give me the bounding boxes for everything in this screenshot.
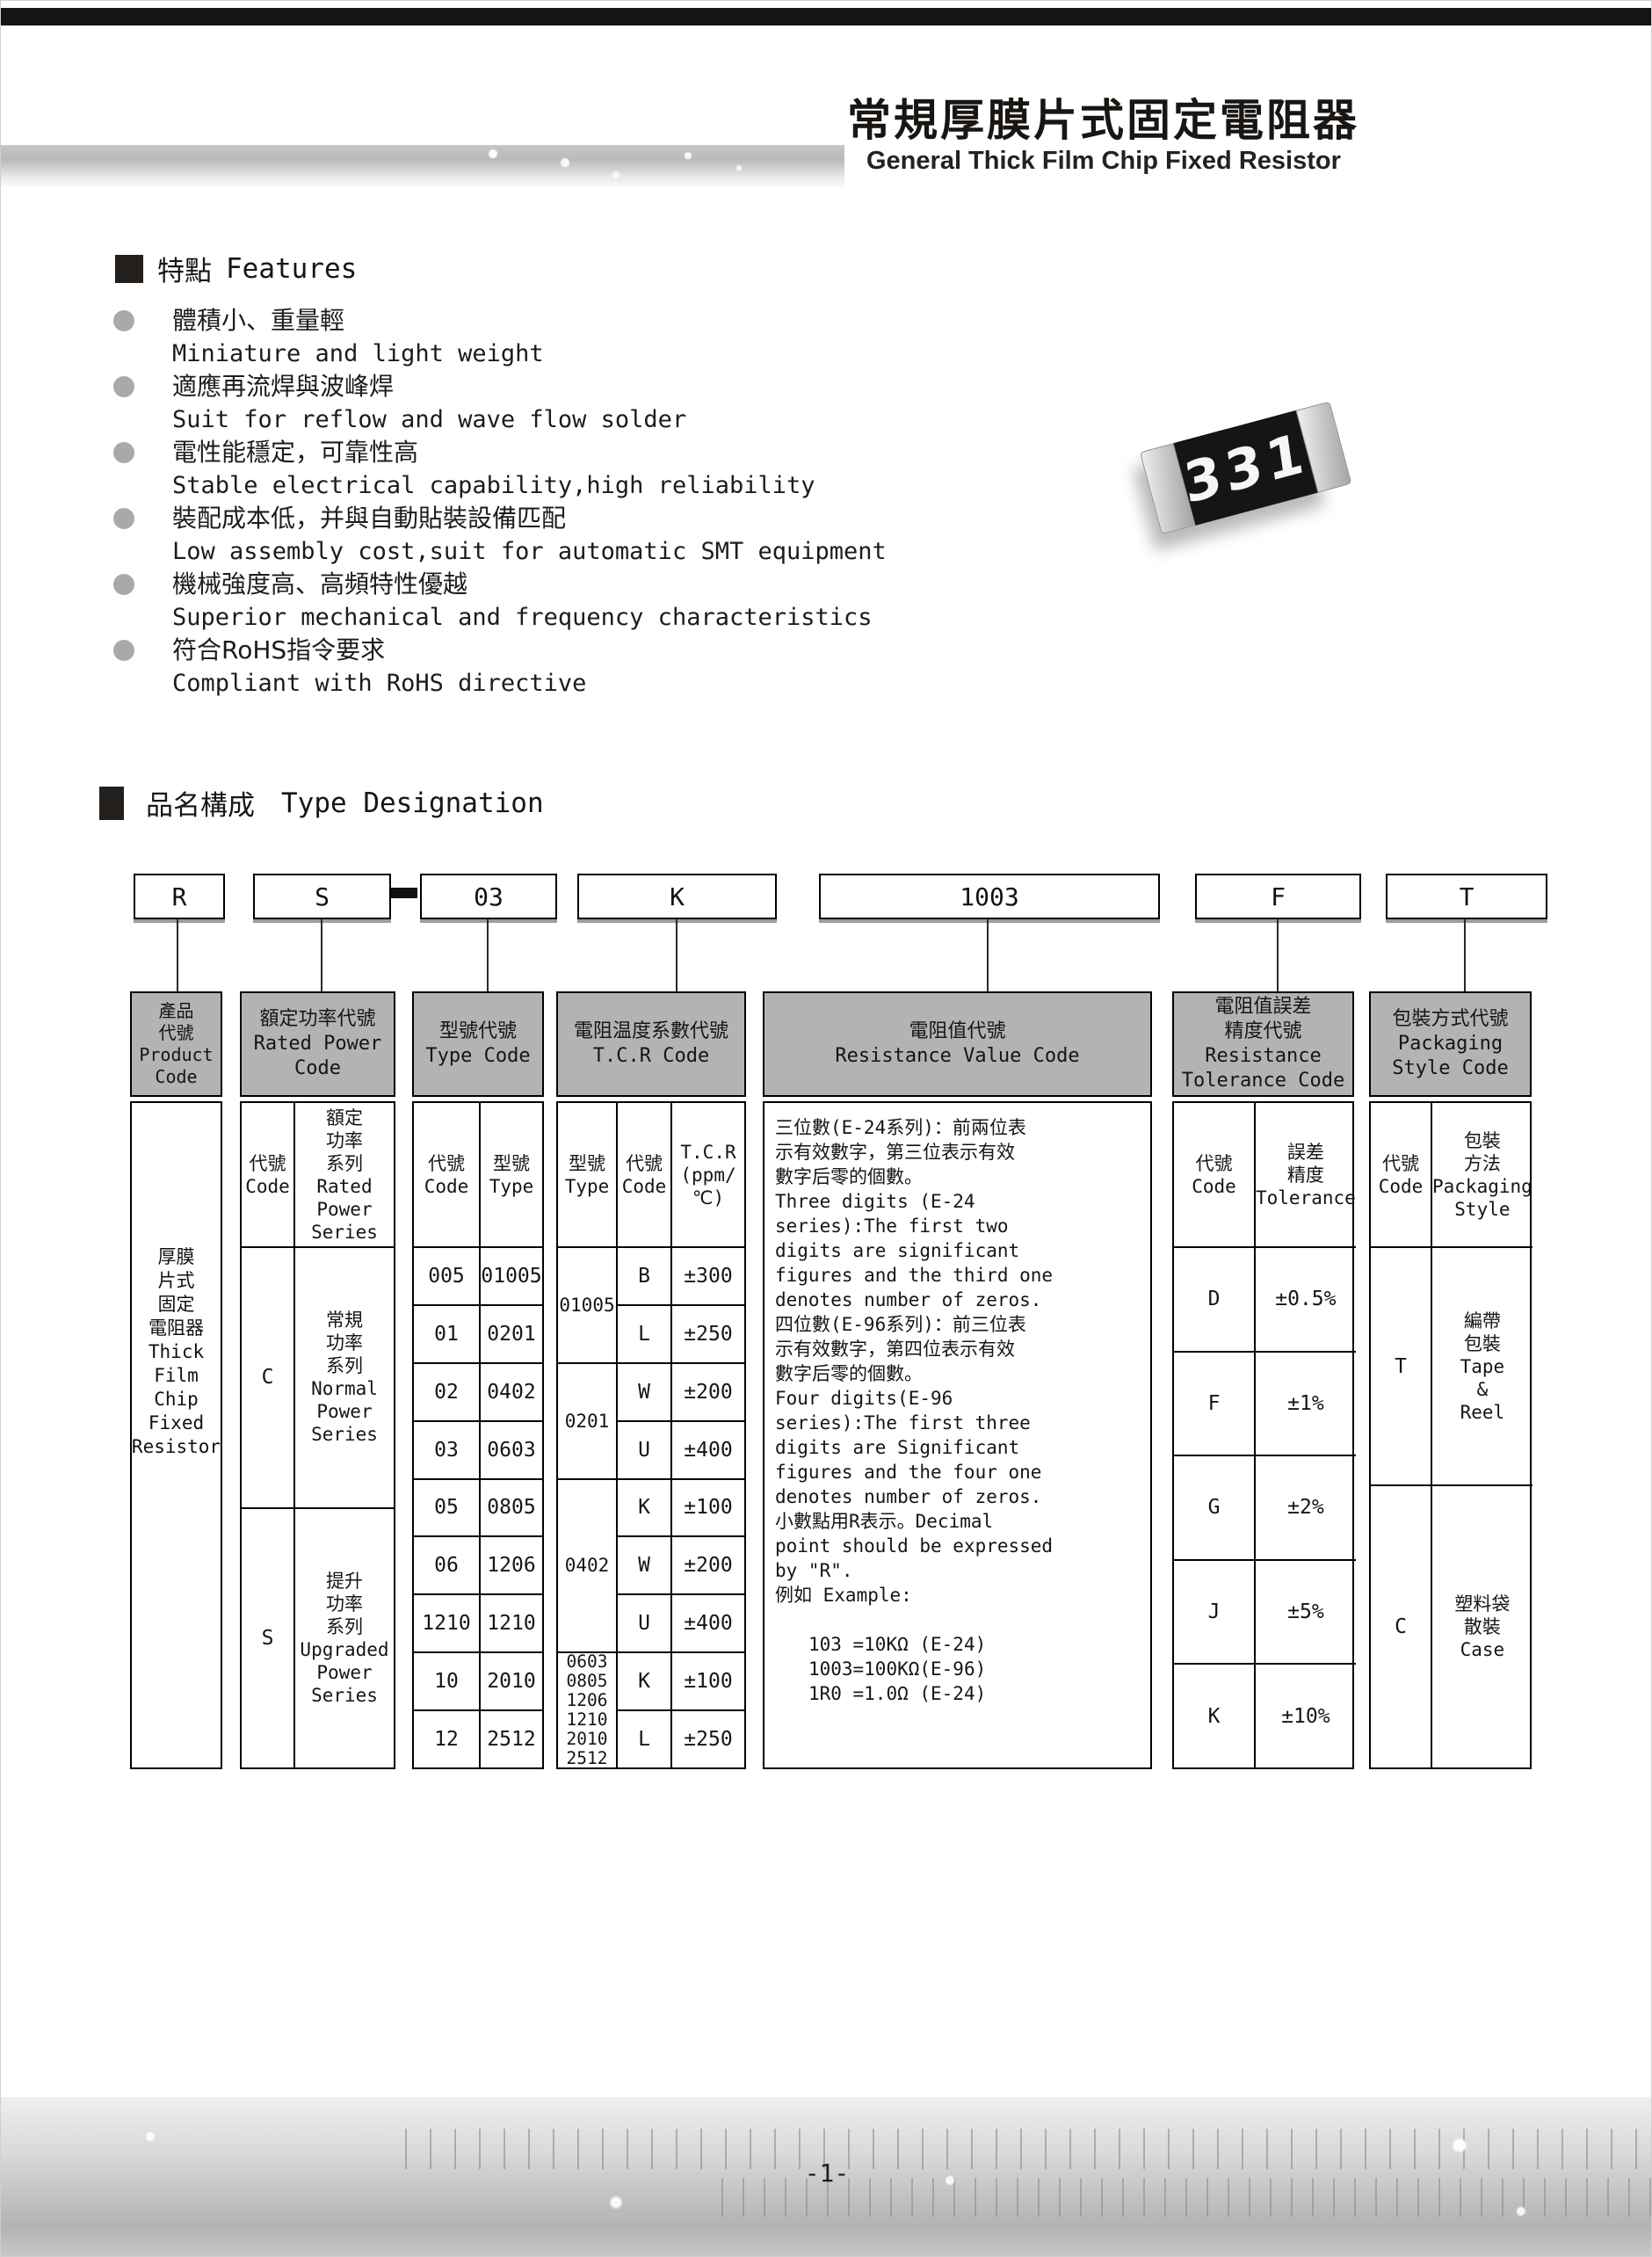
tolerance-value-cell: ±1% xyxy=(1254,1351,1356,1455)
column-header-power: 額定功率代號 Rated Power Code xyxy=(240,991,395,1097)
feature-item: 適應再流焊與波峰焊 Suit for reflow and wave flow … xyxy=(113,370,1080,436)
subheader-cell: 型號 Type xyxy=(558,1103,616,1246)
tcr-value-cell: ±300 xyxy=(670,1246,744,1304)
bullet-icon xyxy=(113,442,134,463)
type-code-cell: 05 xyxy=(414,1478,479,1536)
subheader-cell: 包裝 方法 Packaging Style xyxy=(1431,1103,1532,1246)
packaging-style-cell: 編帶 包裝 Tape & Reel xyxy=(1431,1246,1532,1484)
features-section-heading: 特點 Features xyxy=(115,249,357,288)
tcr-value-cell: ±250 xyxy=(670,1709,744,1767)
column-header-tcr: 電阻温度系數代號 T.C.R Code xyxy=(556,991,746,1097)
feature-text-en: Suit for reflow and wave flow solder xyxy=(113,403,1080,436)
features-list: 體積小、重量輕 Miniature and light weight 適應再流焊… xyxy=(113,304,1080,700)
bullet-icon xyxy=(113,640,134,661)
type-size-cell: 0201 xyxy=(479,1304,542,1362)
type-code-cell: 02 xyxy=(414,1362,479,1420)
type-size-cell: 0805 xyxy=(479,1478,542,1536)
top-border-bar xyxy=(1,8,1652,25)
page-title-en: General Thick Film Chip Fixed Resistor xyxy=(866,147,1341,176)
type-code-cell: 12 xyxy=(414,1709,479,1767)
feature-text-cn: 符合RoHS指令要求 xyxy=(113,634,1080,667)
tolerance-value-cell: ±0.5% xyxy=(1254,1246,1356,1351)
subheader-cell: 代號 Code xyxy=(616,1103,670,1246)
power-code-cell: S xyxy=(242,1507,293,1768)
tolerance-table: 代號 Code 誤差 精度 Tolerance D ±0.5% F ±1% G … xyxy=(1172,1101,1354,1769)
code-box-tolerance: F xyxy=(1195,874,1361,919)
feature-item: 機械強度高、高頻特性優越 Superior mechanical and fre… xyxy=(113,568,1080,634)
feature-text-cn: 體積小、重量輕 xyxy=(113,304,1080,337)
subheader-cell: 型號 Type xyxy=(479,1103,542,1246)
type-designation-heading: 品名構成 Type Designation xyxy=(99,783,544,823)
type-code-cell: 03 xyxy=(414,1420,479,1478)
resistor-marking: 331 xyxy=(1180,419,1312,516)
resistance-value-body: 三位數(E-24系列)：前兩位表 示有效數字，第三位表示有效 數字后零的個數。 … xyxy=(763,1101,1152,1769)
tcr-table: 型號 Type 代號 Code T.C.R (ppm/℃) 01005 B ±3… xyxy=(556,1101,746,1769)
subheader-cell: 代號 Code xyxy=(1174,1103,1254,1246)
tcr-value-cell: ±200 xyxy=(670,1535,744,1593)
designation-heading-en: Type Designation xyxy=(281,787,544,819)
bullet-icon xyxy=(113,574,134,595)
tolerance-code-cell: D xyxy=(1174,1246,1254,1351)
tcr-code-cell: K xyxy=(616,1651,670,1709)
power-series-cell: 提升 功率 系列 Upgraded Power Series xyxy=(293,1507,394,1768)
connector-line xyxy=(676,919,677,993)
connector-line xyxy=(487,919,489,993)
code-box-power: S xyxy=(253,874,391,919)
bullet-icon xyxy=(113,376,134,397)
type-size-cell: 01005 xyxy=(479,1246,542,1304)
feature-text-en: Low assembly cost,suit for automatic SMT… xyxy=(113,535,1080,568)
tcr-type-group-cell: 0402 xyxy=(558,1478,616,1652)
rated-power-table: 代號 Code 額定 功率 系列 Rated Power Series C 常規… xyxy=(240,1101,395,1769)
tcr-value-cell: ±400 xyxy=(670,1593,744,1651)
features-heading-cn: 特點 xyxy=(157,249,212,288)
tcr-code-cell: U xyxy=(616,1593,670,1651)
tcr-code-cell: L xyxy=(616,1304,670,1362)
black-square-icon xyxy=(115,255,143,283)
features-heading-en: Features xyxy=(226,253,357,285)
tolerance-code-cell: J xyxy=(1174,1559,1254,1664)
feature-item: 電性能穩定，可靠性高 Stable electrical capability,… xyxy=(113,436,1080,502)
code-box-packaging: T xyxy=(1386,874,1547,919)
packaging-code-cell: T xyxy=(1371,1246,1431,1484)
type-code-cell: 06 xyxy=(414,1535,479,1593)
connector-line xyxy=(987,919,989,993)
packaging-code-cell: C xyxy=(1371,1484,1431,1767)
tcr-value-cell: ±100 xyxy=(670,1651,744,1709)
feature-item: 符合RoHS指令要求 Compliant with RoHS directive xyxy=(113,634,1080,700)
type-code-cell: 10 xyxy=(414,1651,479,1709)
tcr-value-cell: ±200 xyxy=(670,1362,744,1420)
feature-text-cn: 機械強度高、高頻特性優越 xyxy=(113,568,1080,601)
designation-heading-cn: 品名構成 xyxy=(146,783,255,823)
column-header-type: 型號代號 Type Code xyxy=(412,991,544,1097)
code-box-resistance: 1003 xyxy=(819,874,1160,919)
packaging-table: 代號 Code 包裝 方法 Packaging Style T 編帶 包裝 Ta… xyxy=(1369,1101,1532,1769)
bullet-icon xyxy=(113,310,134,331)
type-code-table: 代號 Code 型號 Type 005 01005 01 0201 02 040… xyxy=(412,1101,544,1769)
page-title-cn: 常規厚膜片式固定電阻器 xyxy=(847,85,1359,149)
type-size-cell: 0402 xyxy=(479,1362,542,1420)
tcr-code-cell: K xyxy=(616,1478,670,1536)
code-box-type: 03 xyxy=(420,874,557,919)
feature-text-cn: 裝配成本低，并與自動貼裝設備匹配 xyxy=(113,502,1080,535)
subheader-cell: T.C.R (ppm/℃) xyxy=(670,1103,744,1246)
resistor-photo: 331 xyxy=(1140,407,1331,534)
black-square-icon xyxy=(99,787,124,820)
tolerance-code-cell: G xyxy=(1174,1455,1254,1559)
feature-text-en: Stable electrical capability,high reliab… xyxy=(113,469,1080,502)
power-code-cell: C xyxy=(242,1246,293,1507)
power-series-cell: 常規 功率 系列 Normal Power Series xyxy=(293,1246,394,1507)
connector-line xyxy=(177,919,178,993)
tolerance-value-cell: ±5% xyxy=(1254,1559,1356,1664)
tolerance-code-cell: K xyxy=(1174,1663,1254,1767)
connector-line xyxy=(321,919,322,993)
tcr-type-group-cell: 0201 xyxy=(558,1362,616,1478)
tcr-code-cell: W xyxy=(616,1535,670,1593)
column-header-tolerance: 電阻值誤差 精度代號 Resistance Tolerance Code xyxy=(1172,991,1354,1097)
feature-text-en: Superior mechanical and frequency charac… xyxy=(113,601,1080,634)
page-number: -1- xyxy=(1,2159,1652,2188)
type-code-cell: 01 xyxy=(414,1304,479,1362)
tcr-code-cell: B xyxy=(616,1246,670,1304)
datasheet-page: 常規厚膜片式固定電阻器 General Thick Film Chip Fixe… xyxy=(0,0,1652,2257)
subheader-cell: 代號 Code xyxy=(1371,1103,1431,1246)
resistor-body: 331 xyxy=(1173,410,1318,526)
column-header-product: 產品 代號 Product Code xyxy=(130,991,222,1097)
type-size-cell: 1210 xyxy=(479,1593,542,1651)
tcr-code-cell: W xyxy=(616,1362,670,1420)
connector-line xyxy=(1464,919,1466,993)
feature-item: 體積小、重量輕 Miniature and light weight xyxy=(113,304,1080,370)
feature-text-cn: 適應再流焊與波峰焊 xyxy=(113,370,1080,403)
header-gradient-band xyxy=(1,145,844,187)
tolerance-code-cell: F xyxy=(1174,1351,1254,1455)
code-box-product: R xyxy=(134,874,225,919)
column-header-resistance: 電阻值代號 Resistance Value Code xyxy=(763,991,1152,1097)
tcr-value-cell: ±100 xyxy=(670,1478,744,1536)
tcr-code-cell: U xyxy=(616,1420,670,1478)
tcr-value-cell: ±400 xyxy=(670,1420,744,1478)
bullet-icon xyxy=(113,508,134,529)
tolerance-value-cell: ±2% xyxy=(1254,1455,1356,1559)
type-size-cell: 2512 xyxy=(479,1709,542,1767)
subheader-cell: 代號 Code xyxy=(242,1103,293,1246)
dash-separator xyxy=(391,888,417,898)
column-header-packaging: 包裝方式代號 Packaging Style Code xyxy=(1369,991,1532,1097)
tolerance-value-cell: ±10% xyxy=(1254,1663,1356,1767)
code-box-tcr: K xyxy=(577,874,777,919)
feature-text-en: Compliant with RoHS directive xyxy=(113,667,1080,700)
packaging-style-cell: 塑料袋 散裝 Case xyxy=(1431,1484,1532,1767)
tcr-code-cell: L xyxy=(616,1709,670,1767)
product-code-body: 厚膜 片式 固定 電阻器 Thick Film Chip Fixed Resis… xyxy=(130,1101,222,1769)
tcr-value-cell: ±250 xyxy=(670,1304,744,1362)
type-code-cell: 005 xyxy=(414,1246,479,1304)
feature-text-cn: 電性能穩定，可靠性高 xyxy=(113,436,1080,469)
feature-item: 裝配成本低，并與自動貼裝設備匹配 Low assembly cost,suit … xyxy=(113,502,1080,568)
type-code-cell: 1210 xyxy=(414,1593,479,1651)
tcr-type-group-cell: 0603 0805 1206 1210 2010 2512 xyxy=(558,1651,616,1767)
feature-text-en: Miniature and light weight xyxy=(113,337,1080,370)
type-size-cell: 1206 xyxy=(479,1535,542,1593)
type-size-cell: 2010 xyxy=(479,1651,542,1709)
type-size-cell: 0603 xyxy=(479,1420,542,1478)
subheader-cell: 代號 Code xyxy=(414,1103,479,1246)
tcr-type-group-cell: 01005 xyxy=(558,1246,616,1362)
subheader-cell: 額定 功率 系列 Rated Power Series xyxy=(293,1103,394,1246)
subheader-cell: 誤差 精度 Tolerance xyxy=(1254,1103,1356,1246)
connector-line xyxy=(1277,919,1279,993)
